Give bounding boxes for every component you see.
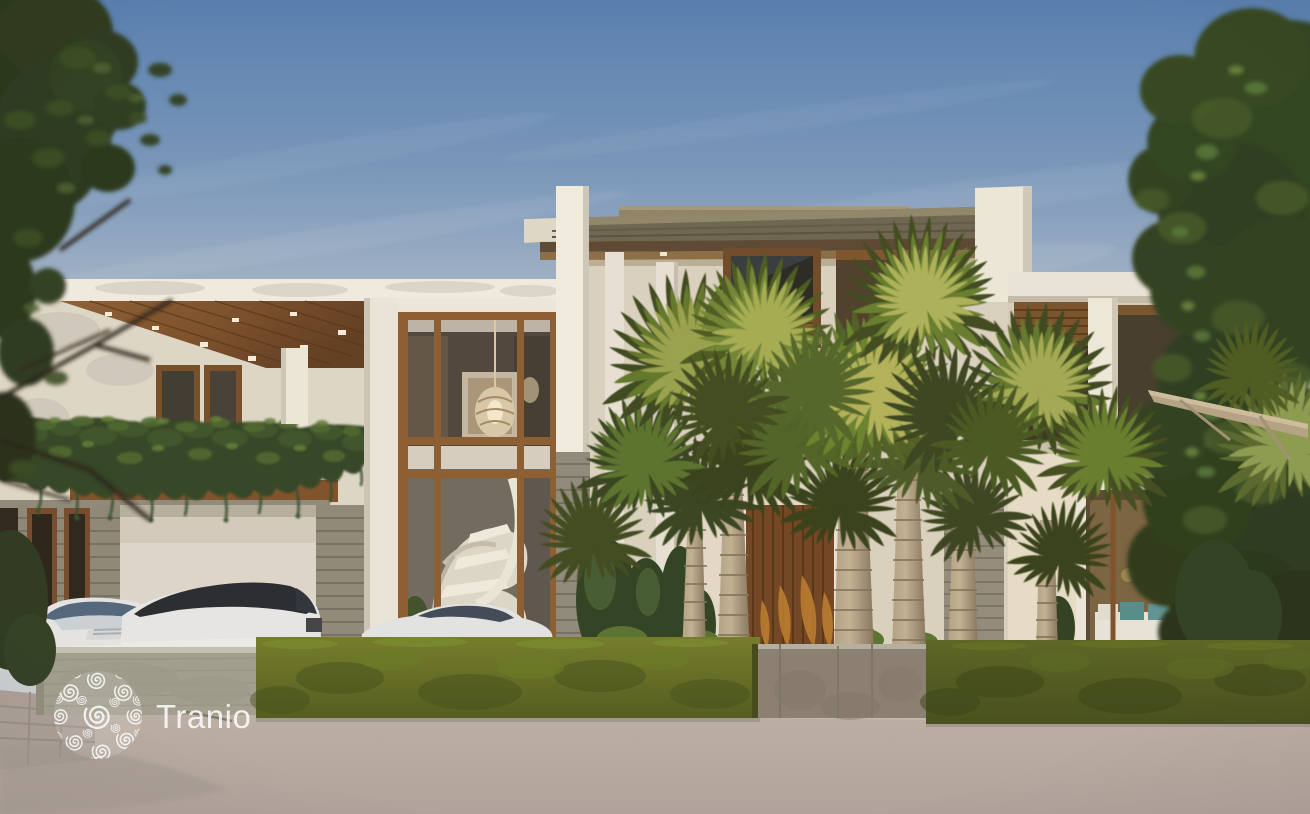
svg-text:Tranio: Tranio <box>156 698 251 735</box>
